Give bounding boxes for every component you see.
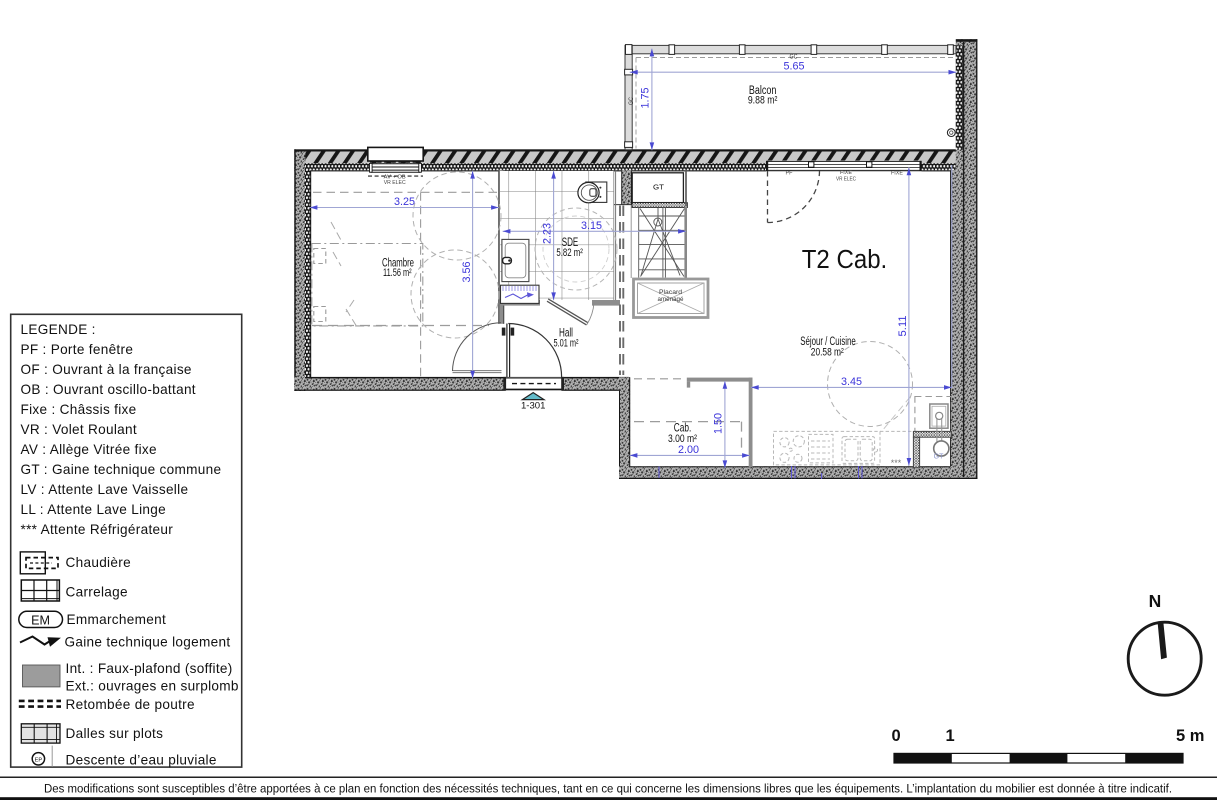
svg-text:2.00: 2.00 bbox=[678, 444, 699, 456]
svg-text:GT: GT bbox=[653, 185, 665, 192]
svg-text:Fixe : Châssis fixe: Fixe : Châssis fixe bbox=[21, 402, 137, 417]
svg-text:GT : Gaine technique commune: GT : Gaine technique commune bbox=[21, 462, 222, 477]
svg-text:1-301: 1-301 bbox=[521, 400, 546, 411]
svg-text:2.23: 2.23 bbox=[542, 223, 554, 244]
svg-text:OF : Ouvrant à la française: OF : Ouvrant à la française bbox=[21, 362, 192, 377]
svg-text:Des modifications sont suscept: Des modifications sont susceptibles d’êt… bbox=[44, 781, 1172, 795]
svg-text:3.45: 3.45 bbox=[841, 376, 862, 388]
svg-text:PF: PF bbox=[786, 171, 794, 177]
svg-text:AV : Allège Vitrée fixe: AV : Allège Vitrée fixe bbox=[21, 442, 157, 457]
svg-text:Chaudière: Chaudière bbox=[66, 555, 131, 570]
svg-text:1: 1 bbox=[946, 727, 955, 745]
svg-text:9.88 m²: 9.88 m² bbox=[748, 95, 778, 107]
svg-text:T2 Cab.: T2 Cab. bbox=[802, 246, 888, 274]
svg-text:LEGENDE :: LEGENDE : bbox=[21, 322, 96, 337]
svg-text:3.56: 3.56 bbox=[461, 262, 473, 283]
svg-text:FIXE: FIXE bbox=[840, 170, 852, 176]
svg-text:VR : Volet Roulant: VR : Volet Roulant bbox=[21, 422, 137, 437]
svg-text:Carrelage: Carrelage bbox=[66, 585, 128, 600]
svg-text:3.00 m²: 3.00 m² bbox=[668, 433, 697, 445]
svg-text:Descente d’eau pluviale: Descente d’eau pluviale bbox=[66, 753, 217, 768]
svg-text:PF : Porte fenêtre: PF : Porte fenêtre bbox=[21, 342, 134, 357]
svg-text:EM: EM bbox=[31, 613, 50, 627]
svg-text:FIXE: FIXE bbox=[891, 171, 903, 177]
svg-text:aménagé: aménagé bbox=[658, 296, 684, 303]
svg-text:N: N bbox=[1149, 591, 1162, 611]
svg-text:Int. : Faux-plafond (soffite): Int. : Faux-plafond (soffite) bbox=[66, 661, 233, 676]
svg-text:LL : Attente Lave Linge: LL : Attente Lave Linge bbox=[21, 502, 166, 517]
svg-text:GC: GC bbox=[629, 96, 635, 105]
svg-text:Retombée de poutre: Retombée de poutre bbox=[66, 697, 195, 712]
svg-text:Dalles sur plots: Dalles sur plots bbox=[66, 726, 164, 741]
svg-text:GT: GT bbox=[934, 454, 944, 461]
svg-text:3.15: 3.15 bbox=[581, 220, 602, 232]
svg-text:***: *** bbox=[891, 458, 902, 468]
svg-text:1.75: 1.75 bbox=[640, 88, 652, 109]
svg-text:Placard: Placard bbox=[659, 289, 683, 296]
svg-text:5 m: 5 m bbox=[1176, 727, 1204, 745]
svg-text:*** Attente Réfrigérateur: *** Attente Réfrigérateur bbox=[21, 522, 174, 537]
svg-text:5.01 m²: 5.01 m² bbox=[554, 338, 579, 350]
svg-text:VR ELEC: VR ELEC bbox=[836, 176, 856, 182]
svg-text:Ext.: ouvrages en surplomb: Ext.: ouvrages en surplomb bbox=[66, 679, 239, 694]
svg-text:5.11: 5.11 bbox=[897, 316, 909, 337]
svg-text:5.65: 5.65 bbox=[784, 61, 805, 73]
svg-text:VR ELEC: VR ELEC bbox=[384, 180, 406, 186]
svg-text:20.58 m²: 20.58 m² bbox=[811, 347, 844, 359]
svg-text:11.56 m²: 11.56 m² bbox=[383, 267, 412, 279]
svg-text:1.50: 1.50 bbox=[713, 413, 725, 434]
svg-text:EP: EP bbox=[35, 757, 43, 763]
svg-text:0: 0 bbox=[892, 727, 901, 745]
svg-text:OB : Ouvrant oscillo-battant: OB : Ouvrant oscillo-battant bbox=[21, 382, 196, 397]
svg-text:Gaine technique logement: Gaine technique logement bbox=[65, 635, 231, 650]
svg-text:3.25: 3.25 bbox=[394, 196, 415, 208]
svg-text:GC: GC bbox=[790, 55, 799, 61]
svg-text:LV : Attente Lave Vaisselle: LV : Attente Lave Vaisselle bbox=[21, 482, 189, 497]
svg-text:Emmarchement: Emmarchement bbox=[67, 612, 167, 627]
svg-text:5.82 m²: 5.82 m² bbox=[556, 247, 583, 259]
